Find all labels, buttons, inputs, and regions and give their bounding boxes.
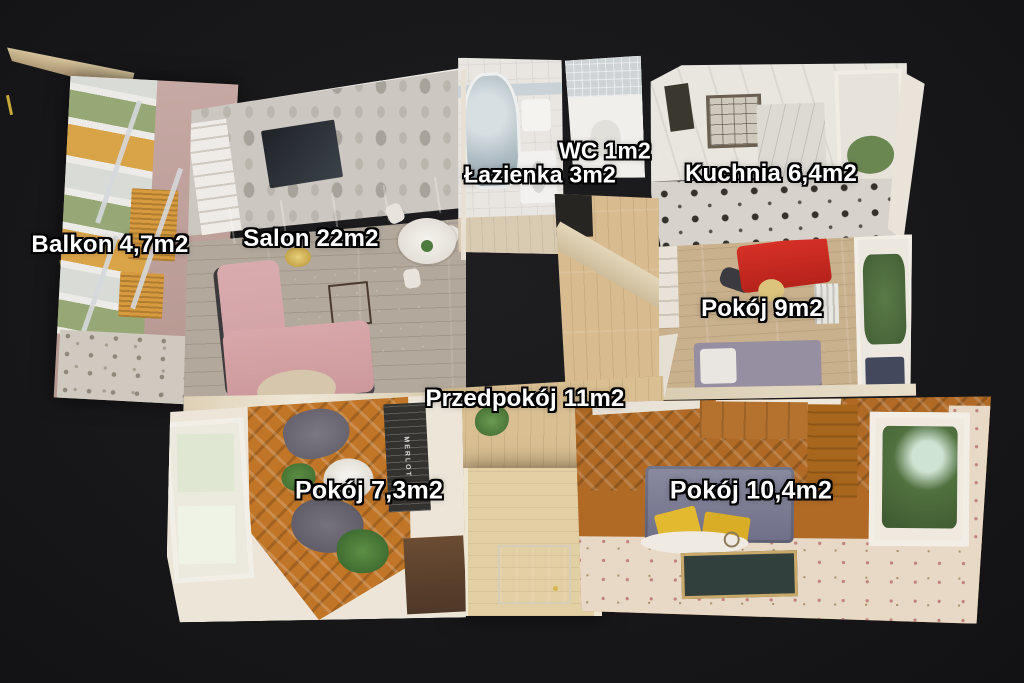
road-marking-dash [6, 95, 13, 115]
room-pokoj-7-3: MERLOT [164, 393, 466, 622]
room-label-lazienka: Łazienka 3m2 [464, 162, 616, 189]
room-label-salon: Salon 22m2 [243, 225, 378, 253]
floorplan-scene: MERLOT Balkon 4,7m2 Salon 22m2 WC 1m2 Ła… [0, 0, 1024, 683]
room-label-pokoj-9: Pokój 9m2 [701, 295, 823, 323]
room-lazienka [452, 54, 569, 258]
room-label-pokoj-7-3: Pokój 7,3m2 [295, 477, 443, 506]
entry-door [498, 545, 571, 604]
dresser [699, 401, 807, 439]
desk [404, 536, 467, 615]
window-pane [178, 505, 236, 564]
wall-fragment [547, 222, 672, 309]
room-label-kuchnia: Kuchnia 6,4m2 [685, 160, 857, 188]
room-label-wc: WC 1m2 [559, 138, 651, 165]
wc-tiles [565, 56, 642, 98]
dining-chair [402, 268, 421, 289]
window-tree-view [863, 253, 907, 345]
hallway-upper [555, 190, 666, 394]
room-label-balkon: Balkon 4,7m2 [31, 231, 188, 259]
decor-ring [723, 531, 739, 547]
room-pokoj-10-4 [573, 388, 991, 624]
wine-poster-text: MERLOT [402, 436, 411, 478]
tv-screen [261, 119, 343, 187]
sink [521, 99, 551, 132]
door-knob [553, 586, 558, 591]
glass-cabinet [706, 93, 763, 149]
room-label-przedpokoj: Przedpokój 11m2 [425, 385, 624, 413]
window-pane [177, 433, 235, 492]
potted-plant [336, 529, 389, 574]
window-tree-view [882, 426, 958, 529]
table-plant [421, 240, 433, 252]
room-label-pokoj-10-4: Pokój 10,4m2 [670, 477, 832, 506]
room-kuchnia [645, 53, 914, 254]
framed-painting [681, 551, 799, 600]
bed-pillow [700, 348, 737, 383]
bathroom-floor [457, 214, 568, 258]
